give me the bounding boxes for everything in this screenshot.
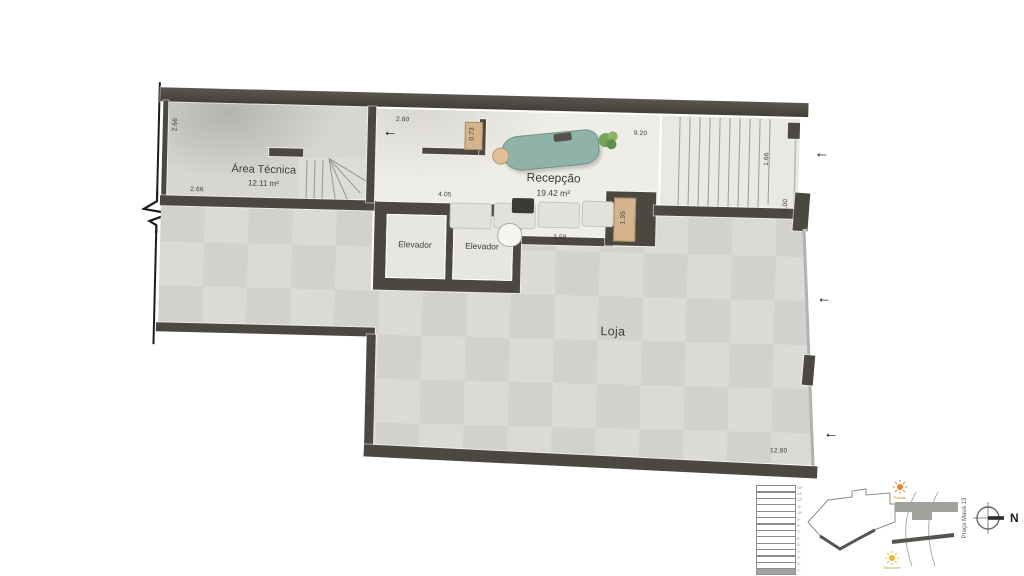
- sun-label-top: Poente: [890, 495, 910, 500]
- dim-niche: 1.35: [618, 192, 629, 244]
- floor-stack: 14º13º12º11º10º9º8º7º6º5º4º3º2º1º: [756, 486, 802, 576]
- dim-stair-run: 9.20: [634, 129, 648, 139]
- dim-stair-width: 1.66: [762, 133, 773, 185]
- entry-arrow-icon: ←: [383, 125, 398, 139]
- dim-entry: 2.80: [396, 115, 410, 125]
- room-area: 19.42 m²: [536, 188, 570, 199]
- room-label-elevador-2: Elevador: [453, 240, 511, 252]
- floor-plan: ← ← ← ← Área Técnica 12.11 m² Recepção 1…: [141, 77, 850, 489]
- wall-right-600: [792, 192, 810, 231]
- work-desk: [581, 201, 614, 228]
- north-compass-icon: [972, 500, 1012, 536]
- dim-right-wall: 6.00: [780, 179, 791, 231]
- sun-icon-top: [893, 480, 907, 494]
- plant-icon: [595, 128, 622, 160]
- dim-at-left: 2.66: [170, 95, 181, 155]
- dim-at-bottom: 2.66: [190, 185, 204, 195]
- floor-row: 1º: [756, 568, 796, 575]
- entry-arrow-icon: ←: [817, 291, 832, 305]
- dim-bench: 0.73: [467, 108, 478, 160]
- dim-storefront: 12.80: [770, 446, 788, 456]
- room-label-elevador-1: Elevador: [386, 239, 444, 251]
- wall-stairs-corner: [788, 123, 800, 139]
- room-label-recepcao: Recepção 19.42 m²: [493, 169, 614, 201]
- entry-arrow-icon: ←: [814, 146, 829, 160]
- desk-monitor: [512, 198, 534, 214]
- room-area: 12.11 m²: [248, 179, 279, 189]
- key-plan: [800, 478, 972, 574]
- work-desk: [449, 202, 492, 229]
- room-name: Área Técnica: [231, 163, 296, 177]
- room-name: Recepção: [526, 170, 580, 185]
- north-label: N: [1010, 511, 1019, 525]
- dim-elevator-width: 4.05: [438, 190, 452, 200]
- key-plan-street-label: Praça Mauá 13: [962, 483, 968, 553]
- work-desk: [537, 202, 580, 229]
- storefront-door: [802, 355, 816, 386]
- entry-arrow-icon: ←: [823, 427, 838, 441]
- room-label-loja: Loja: [583, 324, 643, 340]
- sun-label-bottom: Nascente: [882, 565, 902, 570]
- wall-stair-stub: [269, 148, 303, 157]
- sun-icon-bottom: [885, 551, 899, 565]
- room-label-area-tecnica: Área Técnica 12.11 m²: [203, 162, 324, 191]
- dim-desk: 3.58: [553, 233, 567, 243]
